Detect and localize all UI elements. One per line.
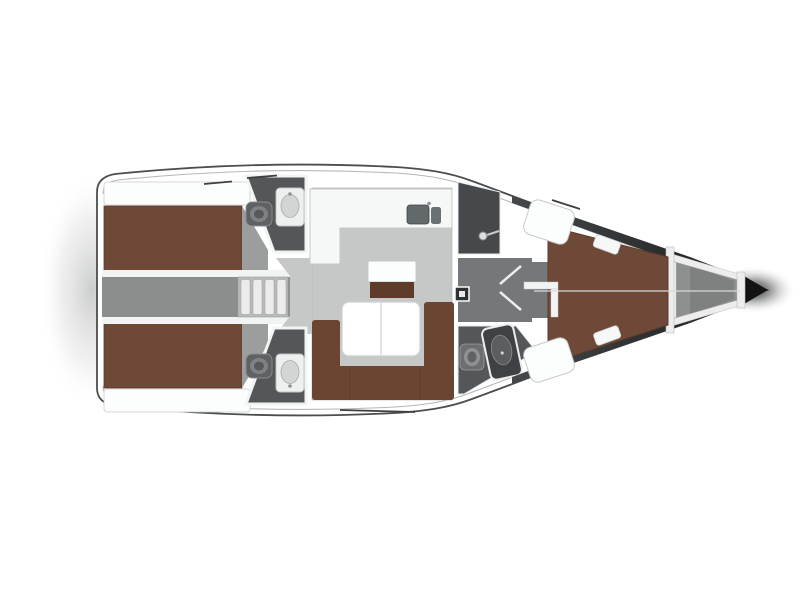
electrical-panel-screen: [459, 291, 465, 297]
aft-stbd-shelf: [104, 389, 250, 412]
passage-wall-bottom: [102, 317, 290, 324]
shower-room: [458, 182, 500, 254]
step-tread: [253, 280, 262, 315]
galley-sink-icon: [407, 205, 429, 224]
mid-passage: [455, 258, 550, 322]
toilet-icon: [246, 202, 272, 226]
passage-wall-top: [102, 270, 290, 277]
forward-cabin: [522, 198, 740, 384]
sink-icon: [276, 188, 304, 226]
forward-door-wall-stub-vertical: [551, 289, 558, 317]
sink-icon: [276, 354, 304, 392]
settee-right-back: [424, 302, 454, 370]
bow-rib-bar: [737, 272, 745, 308]
step-tread: [241, 280, 250, 315]
boat-floor-plan: [0, 0, 800, 600]
settee-left-arm: [312, 320, 340, 370]
shower-room-floor: [458, 182, 500, 254]
boat-floor-plan-page: [0, 0, 800, 600]
salon-bench: [368, 261, 416, 298]
aft-port-berth: [104, 206, 242, 276]
aft-cabin-port: [104, 182, 268, 276]
galley-faucet-icon: [427, 202, 431, 206]
cabin-doorway-floor: [532, 262, 550, 318]
salon-table: [342, 302, 420, 356]
settee-bottom: [312, 366, 454, 400]
toilet-icon: [246, 354, 272, 378]
toilet-icon: [460, 344, 484, 370]
companionway-passage: [102, 270, 290, 324]
aft-stbd-berth: [104, 318, 242, 388]
aft-port-shelf: [104, 182, 250, 205]
step-tread: [265, 280, 274, 315]
forward-door-wall-stub: [524, 282, 558, 289]
bench-base: [370, 282, 414, 298]
galley-sink-small-icon: [431, 207, 441, 224]
bench-top: [368, 261, 416, 282]
step-tread: [277, 280, 286, 315]
aft-cabin-starboard: [104, 318, 268, 412]
companionway-steps: [238, 277, 288, 317]
